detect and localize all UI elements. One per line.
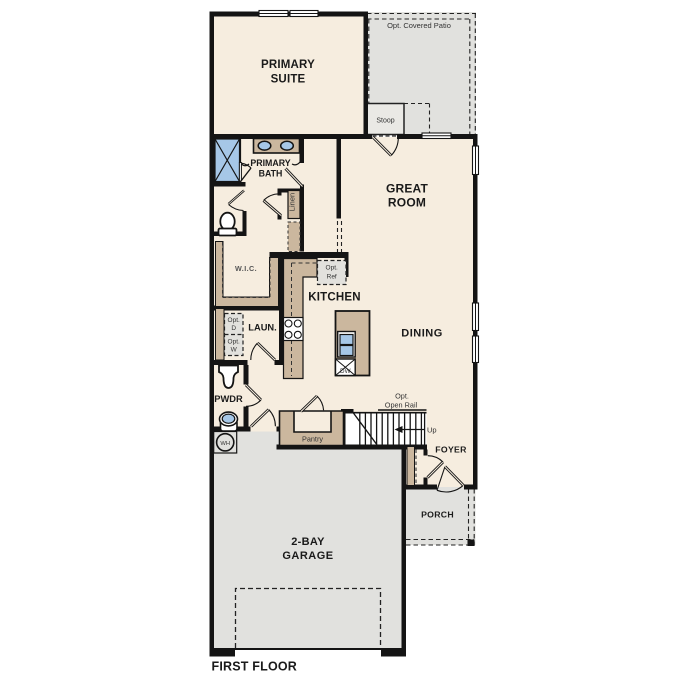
svg-text:GARAGE: GARAGE <box>282 550 333 562</box>
svg-text:Opt.: Opt. <box>395 392 409 401</box>
svg-text:Ref: Ref <box>327 274 337 281</box>
svg-text:W: W <box>231 347 238 354</box>
svg-text:Up: Up <box>427 426 437 435</box>
svg-text:Linen: Linen <box>288 193 297 211</box>
svg-text:2-BAY: 2-BAY <box>291 536 325 548</box>
svg-text:Opt. Covered Patio: Opt. Covered Patio <box>387 21 451 30</box>
svg-text:SUITE: SUITE <box>271 74 306 86</box>
svg-text:PRIMARY: PRIMARY <box>261 59 315 71</box>
svg-text:PORCH: PORCH <box>421 510 454 520</box>
svg-text:LAUN.: LAUN. <box>248 323 276 333</box>
svg-text:Pantry: Pantry <box>302 435 323 444</box>
svg-text:PRIMARY: PRIMARY <box>250 158 290 168</box>
svg-text:W.I.C.: W.I.C. <box>235 264 257 273</box>
svg-text:D: D <box>231 325 236 332</box>
svg-text:DW: DW <box>340 368 351 375</box>
svg-text:FIRST FLOOR: FIRST FLOOR <box>212 660 298 674</box>
svg-text:WH: WH <box>220 441 230 447</box>
svg-text:BATH: BATH <box>259 169 283 179</box>
svg-text:FOYER: FOYER <box>435 445 467 455</box>
svg-text:Opt.: Opt. <box>228 317 240 324</box>
svg-text:KITCHEN: KITCHEN <box>308 292 361 304</box>
svg-text:DINING: DINING <box>401 328 443 340</box>
svg-text:Stoop: Stoop <box>376 118 394 125</box>
svg-text:Opt.: Opt. <box>326 265 338 272</box>
svg-text:ROOM: ROOM <box>388 196 426 210</box>
svg-text:Open Rail: Open Rail <box>385 401 418 410</box>
svg-text:Opt.: Opt. <box>228 339 240 346</box>
svg-text:GREAT: GREAT <box>386 182 429 196</box>
svg-text:PWDR: PWDR <box>214 394 243 404</box>
